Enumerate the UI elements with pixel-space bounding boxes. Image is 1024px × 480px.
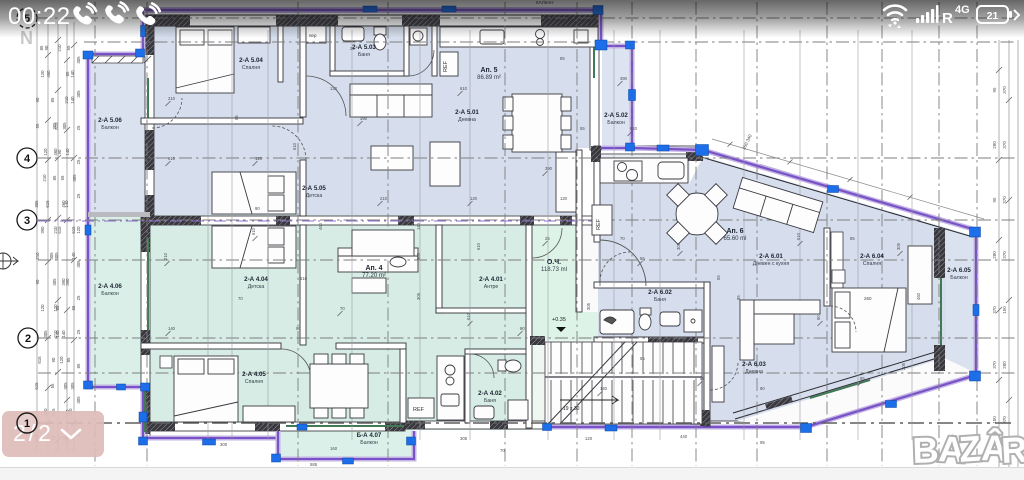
svg-text:2-А 5.02: 2-А 5.02 <box>604 112 628 119</box>
svg-text:210: 210 <box>163 252 168 260</box>
svg-text:Антре: Антре <box>484 284 499 290</box>
svg-text:90: 90 <box>44 45 49 50</box>
svg-text:2-А 5.05: 2-А 5.05 <box>302 185 326 192</box>
svg-text:REF: REF <box>596 218 602 230</box>
svg-text:210: 210 <box>57 44 62 52</box>
svg-text:280: 280 <box>992 251 997 259</box>
svg-text:90: 90 <box>296 326 301 331</box>
svg-text:55: 55 <box>35 123 40 128</box>
svg-text:305: 305 <box>676 242 681 250</box>
svg-text:390: 390 <box>40 226 45 234</box>
svg-text:615: 615 <box>54 122 59 130</box>
svg-text:Дневен с кухня: Дневен с кухня <box>753 261 790 267</box>
svg-text:Спалня: Спалня <box>863 261 881 267</box>
svg-text:305: 305 <box>76 56 81 64</box>
svg-text:260: 260 <box>864 296 872 301</box>
svg-text:140: 140 <box>71 252 76 260</box>
svg-text:86.89 m²: 86.89 m² <box>477 75 501 81</box>
svg-text:460: 460 <box>46 70 51 78</box>
svg-text:55: 55 <box>700 376 705 381</box>
svg-text:305: 305 <box>43 330 48 338</box>
svg-text:140: 140 <box>65 148 70 156</box>
svg-text:70: 70 <box>340 306 345 311</box>
svg-text:25: 25 <box>76 295 81 300</box>
svg-text:Балкон: Балкон <box>360 440 378 446</box>
svg-text:615: 615 <box>45 200 50 208</box>
svg-text:85: 85 <box>66 357 71 362</box>
svg-text:460: 460 <box>61 200 66 208</box>
svg-text:610: 610 <box>796 232 801 240</box>
svg-text:370: 370 <box>992 361 997 369</box>
svg-text:2-А 5.01: 2-А 5.01 <box>455 109 479 116</box>
svg-text:120: 120 <box>40 70 45 78</box>
svg-text:610: 610 <box>476 242 481 250</box>
svg-text:90: 90 <box>520 326 525 331</box>
svg-text:305: 305 <box>76 260 81 268</box>
svg-text:95: 95 <box>992 87 997 93</box>
svg-text:390: 390 <box>360 116 368 121</box>
svg-text:390: 390 <box>545 166 553 171</box>
svg-text:Ап. 6: Ап. 6 <box>726 228 743 235</box>
svg-text:95: 95 <box>992 197 997 203</box>
svg-text:610: 610 <box>292 142 297 150</box>
svg-text:305: 305 <box>901 362 906 370</box>
svg-text:305: 305 <box>54 252 59 260</box>
svg-text:00:22: 00:22 <box>8 3 71 30</box>
svg-text:120: 120 <box>76 226 81 234</box>
svg-text:85: 85 <box>850 236 855 241</box>
svg-text:21: 21 <box>987 10 999 22</box>
svg-text:150: 150 <box>1002 306 1007 314</box>
svg-text:25: 25 <box>350 46 355 51</box>
svg-text:REF: REF <box>443 60 449 72</box>
svg-text:65.60 ml: 65.60 ml <box>723 236 746 242</box>
svg-text:305: 305 <box>72 174 77 182</box>
svg-text:Балкон: Балкон <box>950 275 968 281</box>
svg-text:2-А 4.05: 2-А 4.05 <box>242 371 266 378</box>
svg-text:210: 210 <box>380 196 388 201</box>
svg-text:2-А 6.04: 2-А 6.04 <box>860 253 884 260</box>
svg-text:77.20 m²: 77.20 m² <box>362 273 386 279</box>
svg-text:140: 140 <box>168 326 176 331</box>
svg-text:305: 305 <box>63 382 68 390</box>
svg-text:25: 25 <box>545 236 550 241</box>
svg-text:460: 460 <box>916 292 921 300</box>
svg-text:55: 55 <box>640 356 645 361</box>
svg-text:210: 210 <box>35 252 40 260</box>
svg-text:Баня: Баня <box>654 297 666 303</box>
svg-text:90: 90 <box>255 206 260 211</box>
svg-text:55: 55 <box>50 383 55 388</box>
svg-text:120: 120 <box>330 86 338 91</box>
svg-text:55: 55 <box>66 45 71 50</box>
svg-text:Дневна: Дневна <box>458 117 476 123</box>
svg-text:610: 610 <box>460 86 468 91</box>
svg-text:118.73 ml: 118.73 ml <box>541 267 567 273</box>
svg-text:370: 370 <box>1002 86 1007 94</box>
svg-text:370: 370 <box>1002 196 1007 204</box>
svg-text:210: 210 <box>64 96 69 104</box>
svg-text:370: 370 <box>1002 141 1007 149</box>
svg-text:55: 55 <box>55 305 60 310</box>
svg-text:305: 305 <box>460 436 468 441</box>
svg-text:280: 280 <box>1002 361 1007 369</box>
svg-text:55: 55 <box>580 126 585 131</box>
svg-text:120: 120 <box>470 196 478 201</box>
svg-text:25: 25 <box>76 159 81 164</box>
svg-text:Дневна: Дневна <box>745 369 763 375</box>
svg-text:4: 4 <box>24 153 31 165</box>
svg-text:610: 610 <box>251 227 256 235</box>
svg-text:120: 120 <box>560 196 568 201</box>
svg-text:280: 280 <box>992 141 997 149</box>
svg-text:Ап. 5: Ап. 5 <box>480 67 497 74</box>
svg-text:Ап. 4: Ап. 4 <box>365 265 382 272</box>
svg-text:70: 70 <box>620 236 625 241</box>
svg-text:210: 210 <box>42 174 47 182</box>
svg-text:305: 305 <box>416 292 421 300</box>
svg-text:140: 140 <box>61 330 66 338</box>
svg-text:90: 90 <box>51 357 56 362</box>
svg-text:2-А 6.02: 2-А 6.02 <box>648 289 672 296</box>
svg-text:370: 370 <box>1002 251 1007 259</box>
svg-text:210: 210 <box>168 96 176 101</box>
svg-text:55: 55 <box>640 256 645 261</box>
svg-text:615: 615 <box>57 226 62 234</box>
svg-text:2-А 4.01: 2-А 4.01 <box>479 276 503 283</box>
svg-text:2-А 5.06: 2-А 5.06 <box>98 117 122 124</box>
svg-text:120: 120 <box>255 156 263 161</box>
svg-text:2-А 6.01: 2-А 6.01 <box>759 253 783 260</box>
svg-text:2-А 4.06: 2-А 4.06 <box>98 283 122 290</box>
svg-text:140: 140 <box>70 96 75 104</box>
svg-text:2-А 6.03: 2-А 6.03 <box>742 361 766 368</box>
svg-text:25: 25 <box>76 329 81 334</box>
svg-text:305: 305 <box>76 396 81 404</box>
svg-text:2-А 5.04: 2-А 5.04 <box>239 57 263 64</box>
svg-text:120: 120 <box>59 356 64 364</box>
svg-text:90: 90 <box>816 315 821 320</box>
svg-text:85: 85 <box>560 56 565 61</box>
svg-text:305: 305 <box>896 242 901 250</box>
svg-text:70: 70 <box>238 296 243 301</box>
svg-text:25: 25 <box>76 125 81 130</box>
svg-text:610: 610 <box>630 126 638 131</box>
svg-text:120: 120 <box>585 436 593 441</box>
svg-text:19 x 30: 19 x 30 <box>563 406 580 412</box>
svg-text:4G: 4G <box>955 4 970 16</box>
svg-text:305: 305 <box>76 90 81 98</box>
svg-text:390: 390 <box>65 278 70 286</box>
svg-text:2-А 5.03: 2-А 5.03 <box>352 44 376 51</box>
svg-text:615: 615 <box>34 382 39 390</box>
svg-text:О.Ч.: О.Ч. <box>547 259 561 266</box>
svg-text:585: 585 <box>310 462 318 467</box>
svg-text:Детска: Детска <box>248 284 265 290</box>
svg-text:90: 90 <box>760 386 765 391</box>
svg-text:+0.35: +0.35 <box>552 317 566 323</box>
svg-text:305: 305 <box>52 278 57 286</box>
svg-text:R: R <box>942 10 953 27</box>
svg-text:85: 85 <box>50 97 55 102</box>
svg-text:140: 140 <box>600 386 608 391</box>
svg-text:Балкон: Балкон <box>607 120 625 126</box>
svg-text:140: 140 <box>55 330 60 338</box>
svg-text:140: 140 <box>416 222 421 230</box>
svg-text:305: 305 <box>34 200 39 208</box>
svg-text:85: 85 <box>736 295 741 300</box>
svg-text:55: 55 <box>71 305 76 310</box>
svg-text:Баня: Баня <box>484 398 496 404</box>
svg-text:120: 120 <box>43 148 48 156</box>
svg-text:Б-А 4.07: Б-А 4.07 <box>357 432 382 439</box>
svg-text:3: 3 <box>24 215 30 227</box>
svg-text:370: 370 <box>992 306 997 314</box>
svg-text:85: 85 <box>76 363 81 368</box>
svg-text:Детска: Детска <box>306 193 323 199</box>
svg-text:55: 55 <box>716 275 721 280</box>
svg-text:Балкон: Балкон <box>101 291 119 297</box>
svg-text:305: 305 <box>62 122 67 130</box>
svg-text:R: R <box>1000 429 1024 471</box>
svg-text:90: 90 <box>35 97 40 102</box>
svg-text:25: 25 <box>76 193 81 198</box>
svg-text:2-А 4.02: 2-А 4.02 <box>478 390 502 397</box>
svg-text:2: 2 <box>25 333 31 345</box>
svg-text:Спалня: Спалня <box>245 379 263 385</box>
svg-text:2-А 4.04: 2-А 4.04 <box>244 276 268 283</box>
svg-text:460: 460 <box>318 222 323 230</box>
svg-text:390: 390 <box>620 76 628 81</box>
svg-text:160: 160 <box>330 446 338 451</box>
svg-text:Z: Z <box>958 428 983 470</box>
svg-text:90: 90 <box>57 149 62 154</box>
svg-text:610: 610 <box>168 156 176 161</box>
svg-text:Баня: Баня <box>358 52 370 58</box>
svg-text:90: 90 <box>35 279 40 284</box>
svg-text:55: 55 <box>860 376 865 381</box>
svg-text:305: 305 <box>70 382 75 390</box>
svg-text:Спалня: Спалня <box>242 65 260 71</box>
svg-text:B: B <box>912 429 938 471</box>
svg-text:120: 120 <box>40 304 45 312</box>
svg-text:1: 1 <box>24 418 30 430</box>
svg-text:610: 610 <box>300 276 308 281</box>
svg-text:305: 305 <box>416 252 421 260</box>
svg-text:610: 610 <box>466 312 471 320</box>
svg-text:305: 305 <box>586 302 591 310</box>
svg-text:615: 615 <box>37 356 42 364</box>
svg-text:95: 95 <box>760 440 765 445</box>
svg-text:85: 85 <box>234 115 239 120</box>
svg-text:Балкон: Балкон <box>101 125 119 131</box>
svg-text:85: 85 <box>52 175 57 180</box>
svg-text:70: 70 <box>500 448 505 453</box>
svg-text:440: 440 <box>680 434 688 439</box>
svg-text:140: 140 <box>70 70 75 78</box>
svg-text:REF: REF <box>413 407 425 413</box>
svg-text:300: 300 <box>220 442 228 447</box>
svg-text:55: 55 <box>60 175 65 180</box>
svg-text:2-А 6.05: 2-А 6.05 <box>947 267 971 274</box>
